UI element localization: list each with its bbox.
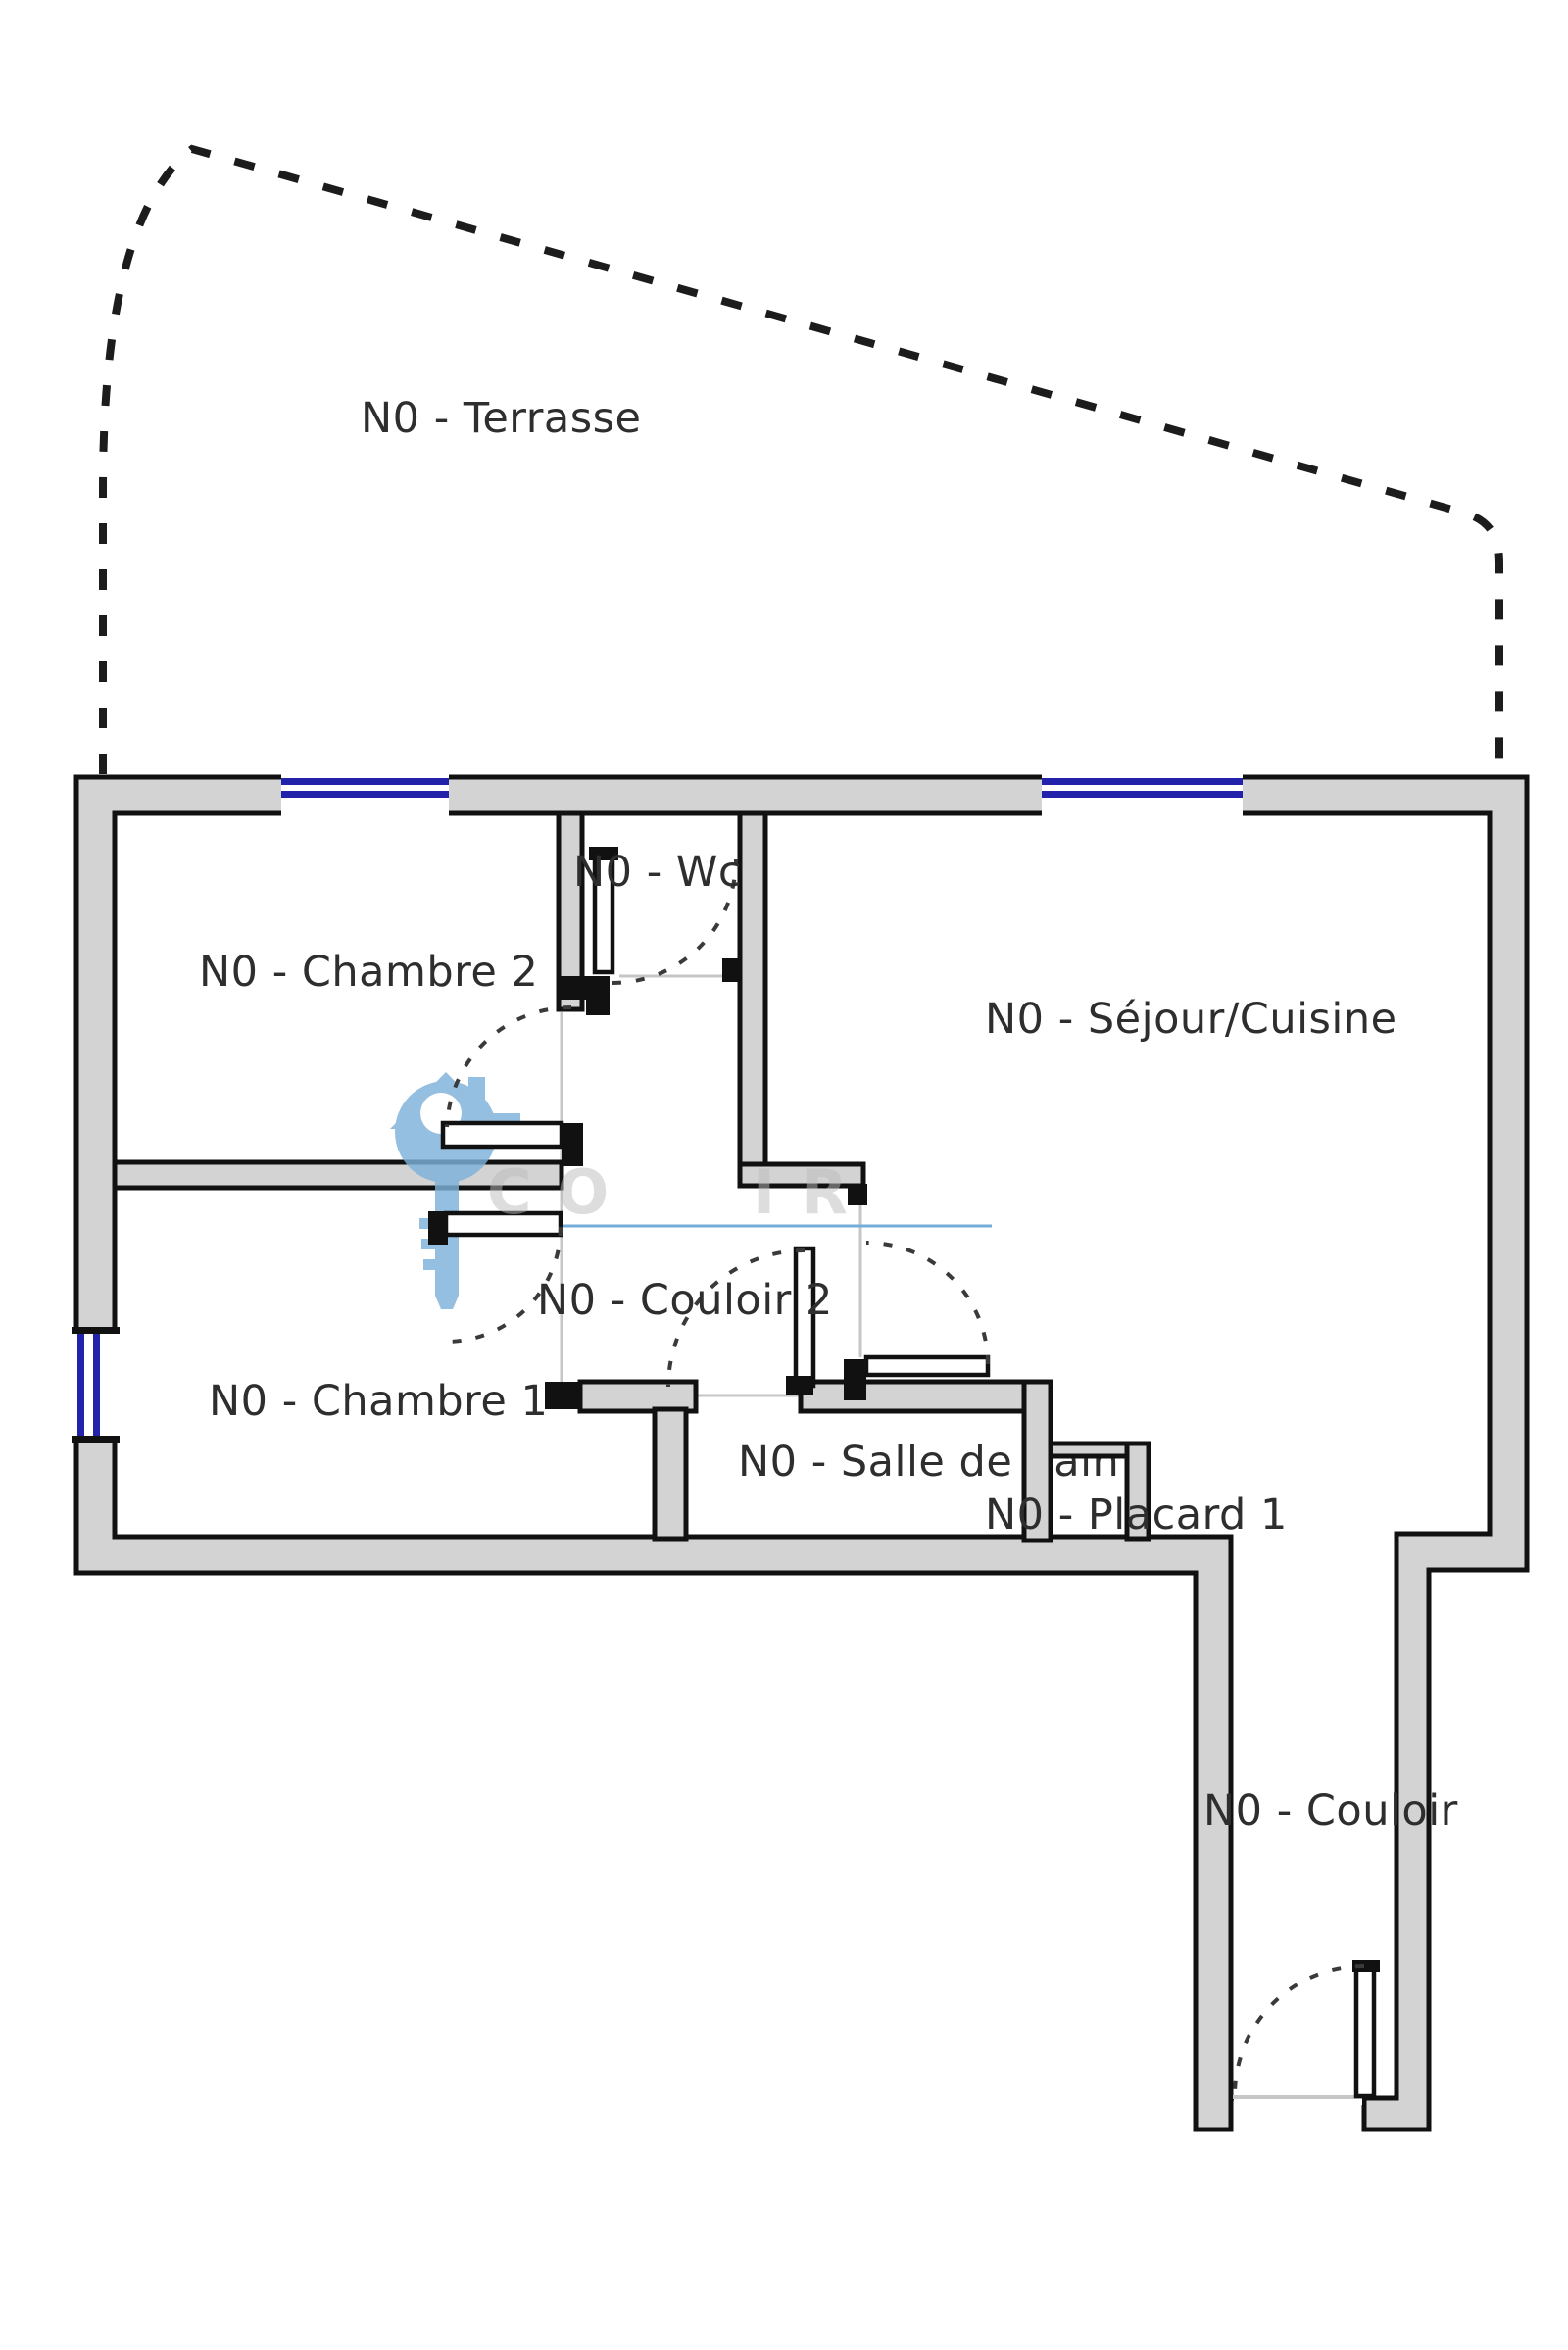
floor-plan: N0 - Salle de bain bbox=[0, 0, 1568, 2350]
watermark-letters-left: CO bbox=[487, 1156, 634, 1228]
door-leaf-chambre2 bbox=[443, 1123, 562, 1147]
room-label-chambre2: N0 - Chambre 2 bbox=[199, 951, 538, 995]
room-label-chambre1: N0 - Chambre 1 bbox=[209, 1380, 548, 1424]
wall-chambre1-sdb bbox=[655, 1409, 686, 1539]
room-label-couloir2: N0 - Couloir 2 bbox=[537, 1279, 833, 1323]
room-label-wc: N0 - Wc bbox=[573, 851, 742, 895]
window-left-wall bbox=[72, 1327, 120, 1443]
room-label-placard1: N0 - Placard 1 bbox=[985, 1493, 1288, 1538]
watermark-letters-right: IR bbox=[753, 1156, 873, 1228]
window-top-right bbox=[1042, 772, 1243, 816]
door-leaf-entry bbox=[1356, 1963, 1374, 2096]
wall-wc-sejour bbox=[740, 813, 765, 1186]
room-label-couloir: N0 - Couloir bbox=[1203, 1789, 1458, 1834]
wall-sdb-top-right bbox=[801, 1382, 1051, 1411]
room-label-sejour-cuisine: N0 - Séjour/Cuisine bbox=[985, 998, 1397, 1042]
window-top-left bbox=[281, 772, 449, 816]
terrace-boundary-dashed-line bbox=[103, 149, 1499, 774]
door-leaf-sejour bbox=[866, 1357, 988, 1375]
entry-threshold bbox=[1233, 2091, 1362, 2105]
room-label-terrasse: N0 - Terrasse bbox=[361, 397, 642, 441]
door-arc-sejour bbox=[866, 1243, 988, 1364]
door-arc-entry bbox=[1235, 1966, 1364, 2095]
